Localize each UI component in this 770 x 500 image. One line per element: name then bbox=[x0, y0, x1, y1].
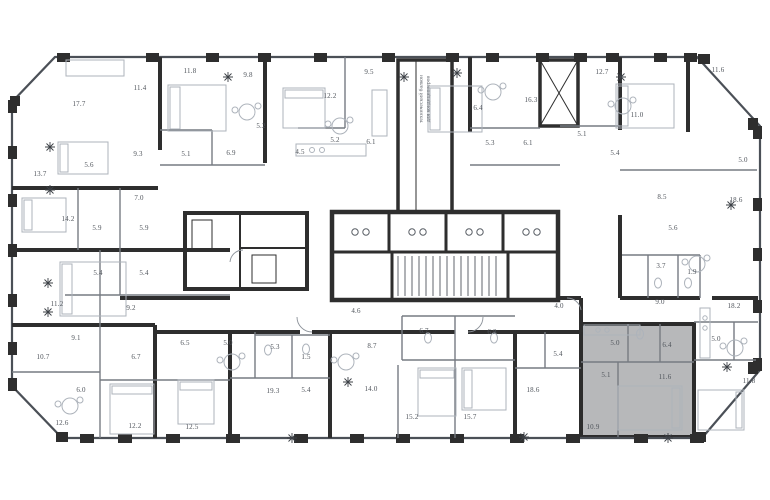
room-area-label: 11.8 bbox=[184, 67, 197, 75]
room-area-label: 6.9 bbox=[226, 149, 235, 157]
room-area-label: 6.1 bbox=[366, 138, 375, 146]
room-area-label: 16.3 bbox=[524, 96, 537, 104]
room-area-label: 5.4 bbox=[553, 350, 562, 358]
room-area-label: 5.3 bbox=[270, 343, 279, 351]
room-area-label: 11.2 bbox=[51, 300, 64, 308]
room-area-label: 1.5 bbox=[301, 353, 310, 361]
room-area-label: 10.7 bbox=[36, 353, 49, 361]
room-area-label: 4.0 bbox=[554, 302, 563, 310]
room-area-label: 10.9 bbox=[586, 423, 599, 431]
room-area-label: 3.7 bbox=[656, 262, 665, 270]
floor-plan: 17.711.411.89.85.212.29.513.75.69.35.16.… bbox=[0, 0, 770, 500]
room-area-label: 5.4 bbox=[93, 269, 102, 277]
room-area-label: 19.3 bbox=[266, 387, 279, 395]
room-area-label: 5.2 bbox=[330, 136, 339, 144]
room-area-label: 8.7 bbox=[367, 342, 376, 350]
room-area-label: 5.0 bbox=[223, 339, 232, 347]
room-area-label: 5.2 bbox=[256, 122, 265, 130]
balcony-note-line1: технический балкон bbox=[419, 75, 426, 123]
room-area-label: 6.4 bbox=[473, 104, 482, 112]
room-area-label: 5.1 bbox=[601, 371, 610, 379]
room-area-label: 11.0 bbox=[631, 111, 644, 119]
room-area-label: 6.4 bbox=[662, 341, 671, 349]
room-area-label: 14.0 bbox=[364, 385, 377, 393]
room-area-label: 13.7 bbox=[33, 170, 46, 178]
room-area-label: 5.4 bbox=[610, 149, 619, 157]
room-area-label: 9.0 bbox=[655, 298, 664, 306]
room-area-label: 6.1 bbox=[523, 139, 532, 147]
room-area-label: 6.7 bbox=[131, 353, 140, 361]
room-area-label: 15.2 bbox=[405, 413, 418, 421]
room-area-label: 12.2 bbox=[323, 92, 336, 100]
selected-apartment[interactable] bbox=[581, 324, 694, 437]
room-area-label: 5.6 bbox=[84, 161, 93, 169]
room-area-label: 12.7 bbox=[595, 68, 608, 76]
room-area-label: 9.5 bbox=[364, 68, 373, 76]
room-area-label: 9.8 bbox=[243, 71, 252, 79]
room-area-label: 12.2 bbox=[128, 422, 141, 430]
room-area-label: 5.6 bbox=[668, 224, 677, 232]
room-area-label: 11.6 bbox=[712, 66, 725, 74]
room-area-label: 8.5 bbox=[657, 193, 666, 201]
room-area-label: 9.2 bbox=[126, 304, 135, 312]
room-area-label: 5.1 bbox=[577, 130, 586, 138]
room-area-label: 15.7 bbox=[463, 413, 476, 421]
room-area-label: 6.8 bbox=[487, 328, 496, 336]
room-area-label: 1.9 bbox=[687, 268, 696, 276]
room-area-label: 6.5 bbox=[180, 339, 189, 347]
room-area-label: 12.5 bbox=[185, 423, 198, 431]
room-area-label: 18.6 bbox=[729, 196, 742, 204]
room-area-label: 11.4 bbox=[134, 84, 147, 92]
room-area-label: 5.9 bbox=[92, 224, 101, 232]
room-area-label: 18.6 bbox=[526, 386, 539, 394]
room-area-label: 5.0 bbox=[610, 339, 619, 347]
room-area-label: 5.0 bbox=[711, 335, 720, 343]
room-area-label: 5.3 bbox=[485, 139, 494, 147]
balcony-note-line2: для кондиционеров bbox=[425, 75, 432, 123]
room-area-label: 12.6 bbox=[55, 419, 68, 427]
floor-plan-drawing bbox=[0, 0, 770, 500]
room-area-label: 7.0 bbox=[134, 194, 143, 202]
room-area-label: 18.2 bbox=[727, 302, 740, 310]
stairs bbox=[398, 256, 496, 296]
room-area-label: 5.9 bbox=[139, 224, 148, 232]
elevator-core bbox=[332, 212, 558, 300]
room-area-label: 4.6 bbox=[351, 307, 360, 315]
room-area-label: 6.7 bbox=[419, 327, 428, 335]
room-area-label: 5.1 bbox=[181, 150, 190, 158]
room-area-label: 5.4 bbox=[139, 269, 148, 277]
room-area-label: 14.2 bbox=[61, 215, 74, 223]
room-area-label: 17.7 bbox=[72, 100, 85, 108]
room-area-label: 6.0 bbox=[76, 386, 85, 394]
room-area-label: 5.4 bbox=[301, 386, 310, 394]
room-area-label: 11.6 bbox=[659, 373, 672, 381]
room-area-label: 9.3 bbox=[133, 150, 142, 158]
room-area-label: 9.1 bbox=[71, 334, 80, 342]
room-area-label: 11.8 bbox=[743, 377, 756, 385]
room-area-label: 4.5 bbox=[295, 148, 304, 156]
room-area-label: 5.0 bbox=[738, 156, 747, 164]
